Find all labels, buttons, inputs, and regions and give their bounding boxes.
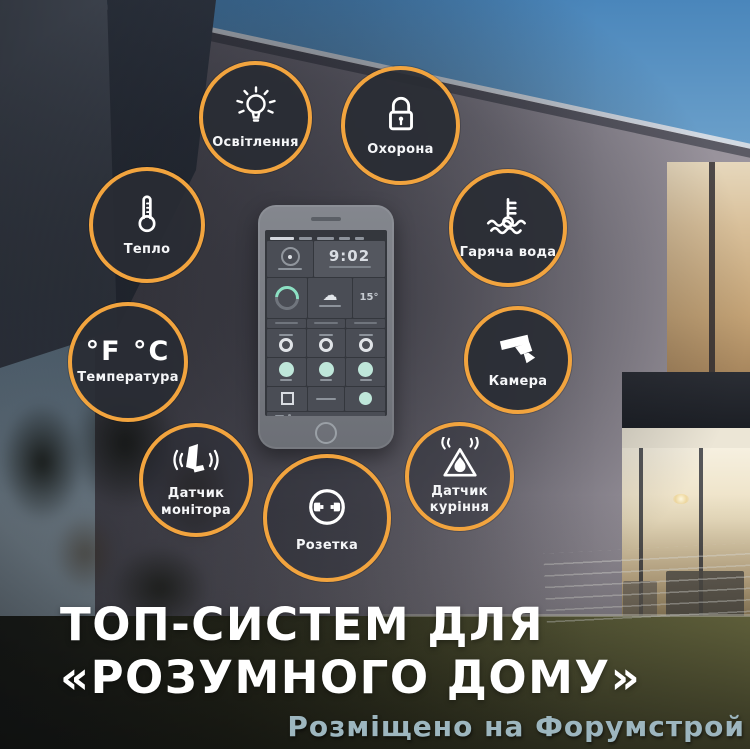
thermometer-icon <box>124 191 170 237</box>
app-tab <box>299 237 312 240</box>
phone-home-button <box>315 422 337 444</box>
feature-label: Тепло <box>124 242 171 258</box>
cctv-camera-icon <box>495 329 541 369</box>
toggle-on <box>346 358 385 386</box>
feature-monitor-sensor: Датчик монітора <box>139 423 253 537</box>
toggle-on <box>267 358 306 386</box>
phone-speaker <box>311 217 341 221</box>
feature-label: Камера <box>489 374 548 390</box>
gauge-icon <box>270 281 304 315</box>
toggle-off <box>307 329 346 357</box>
feature-label: Розетка <box>296 538 358 554</box>
feature-label: Температура <box>77 370 179 386</box>
clock-widget: 9:02 <box>314 241 385 277</box>
door-sensor-icon <box>172 441 220 481</box>
temperature-units-icon: °F °C <box>86 338 171 365</box>
toggle-off <box>346 329 385 357</box>
hot-water-thermometer-icon <box>483 194 533 240</box>
phone-screen: 9:02 ☁ 15° <box>265 230 387 416</box>
feature-temperature: °F °C Температура <box>68 302 188 422</box>
app-tab <box>355 237 364 240</box>
feature-socket: Розетка <box>263 454 391 582</box>
poster-title-line2: «РОЗУМНОГО ДОМУ» <box>60 651 641 704</box>
dial-widget <box>267 241 313 277</box>
weather-widget: ☁ <box>308 278 352 318</box>
feature-camera: Камера <box>464 306 572 414</box>
power-socket-icon <box>301 481 353 533</box>
toggle-on <box>345 387 385 411</box>
clock-value: 9:02 <box>329 249 370 264</box>
watermark-text: Розміщено на Форумстрой <box>287 710 745 743</box>
feature-label: Охорона <box>367 142 433 158</box>
feature-lighting: Освітлення <box>199 61 312 174</box>
dial-icon <box>281 247 300 266</box>
feature-label: Гаряча вода <box>460 245 557 261</box>
toggle-on <box>307 358 346 386</box>
feature-label: Датчик куріння <box>430 484 489 517</box>
poster-title-line1: ТОП-СИСТЕМ ДЛЯ <box>60 598 641 651</box>
app-tab <box>270 237 294 240</box>
thermostat-gauge-widget <box>267 278 307 318</box>
feature-label: Освітлення <box>212 135 299 151</box>
feature-smoke-sensor: Датчик куріння <box>405 422 514 531</box>
poster: 9:02 ☁ 15° <box>0 0 750 749</box>
padlock-icon <box>378 93 424 137</box>
feature-hot-water: Гаряча вода <box>449 169 567 287</box>
screen-cell <box>308 387 344 411</box>
cloud-icon: ☁ <box>323 288 338 303</box>
app-tab-bar <box>267 232 385 240</box>
feature-heating: Тепло <box>89 167 205 283</box>
lightbulb-icon <box>232 84 280 130</box>
feature-label: Датчик монітора <box>161 486 231 519</box>
poster-title: ТОП-СИСТЕМ ДЛЯ «РОЗУМНОГО ДОМУ» <box>60 598 641 704</box>
feature-security: Охорона <box>341 66 460 185</box>
app-tab <box>317 237 334 240</box>
smoke-sensor-icon <box>437 437 483 479</box>
toggle-off <box>267 329 306 357</box>
smartphone: 9:02 ☁ 15° <box>258 205 394 449</box>
toggle-square <box>267 387 307 411</box>
app-tab <box>339 237 350 240</box>
outdoor-temp-value: 15° <box>360 293 379 303</box>
outdoor-temp-widget: 15° <box>353 278 385 318</box>
